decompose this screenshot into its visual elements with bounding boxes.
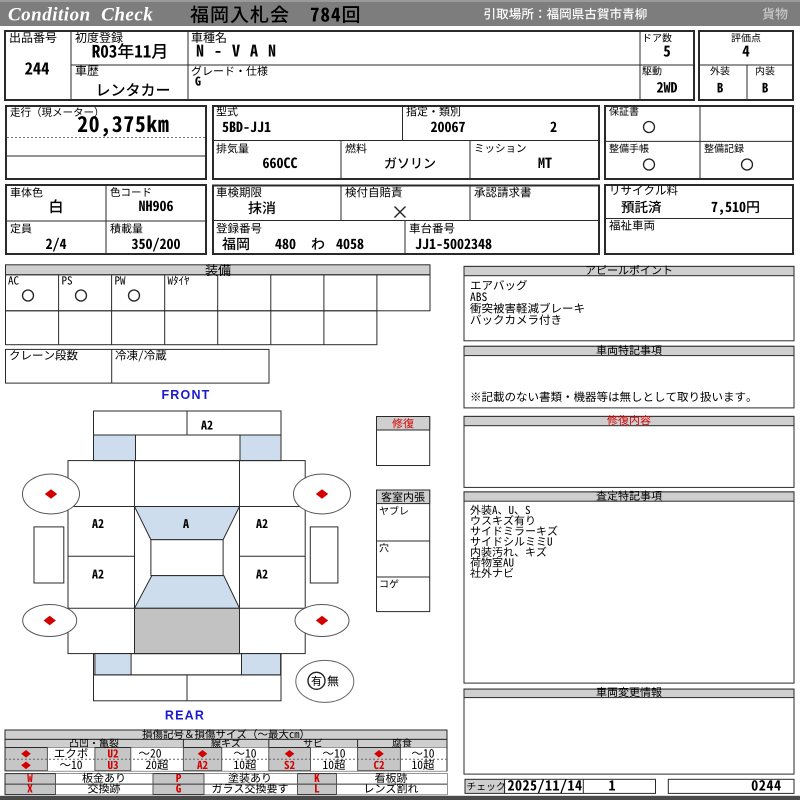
- svg-text:FRONT: FRONT: [161, 388, 210, 402]
- svg-text:Condition Check: Condition Check: [8, 5, 153, 26]
- svg-text:REAR: REAR: [165, 709, 205, 723]
